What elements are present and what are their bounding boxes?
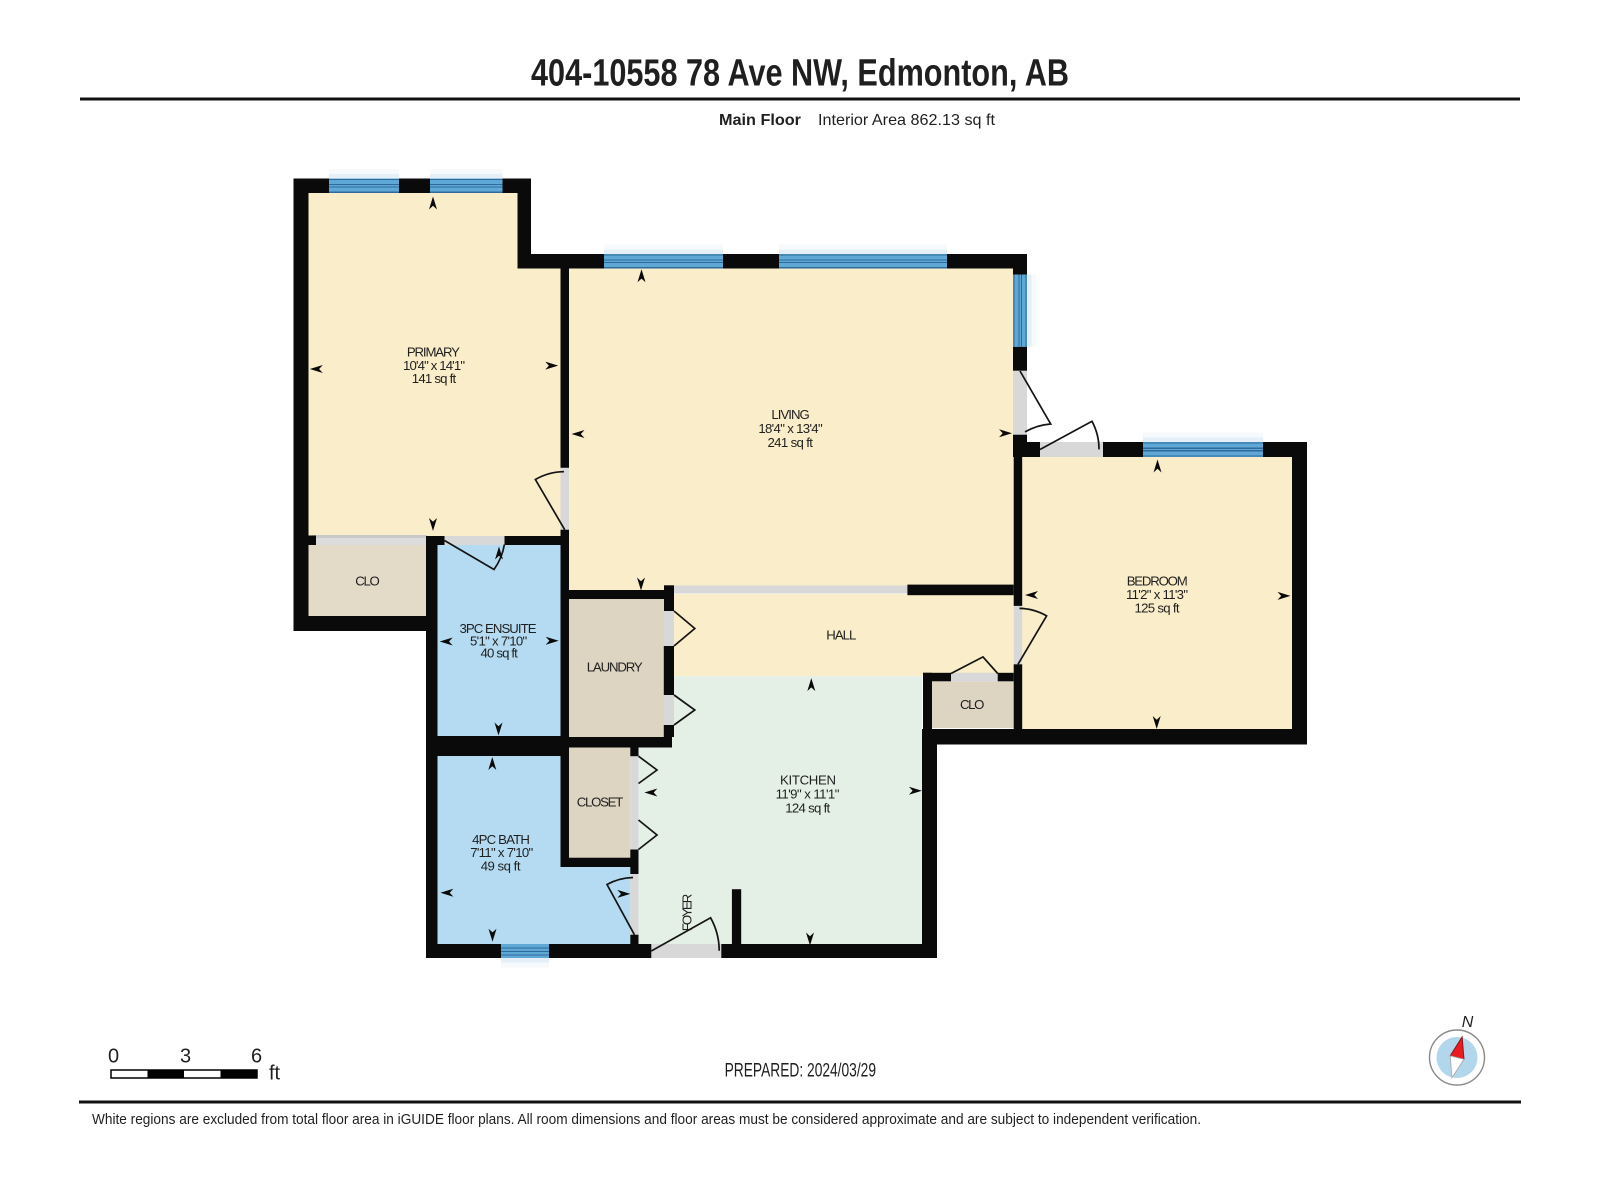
svg-text:18'4" x 13'4": 18'4" x 13'4" [758,421,823,436]
svg-text:241 sq ft: 241 sq ft [767,435,813,450]
svg-text:KITCHEN: KITCHEN [780,773,836,788]
svg-text:141 sq ft: 141 sq ft [412,371,457,386]
svg-text:PREPARED: 2024/03/29: PREPARED: 2024/03/29 [725,1059,876,1081]
svg-text:White regions are excluded fro: White regions are excluded from total fl… [92,1111,1201,1128]
svg-text:LAUNDRY: LAUNDRY [587,660,643,675]
svg-text:404-10558 78 Ave NW, Edmonton,: 404-10558 78 Ave NW, Edmonton, AB [531,53,1069,95]
svg-text:49 sq ft: 49 sq ft [481,859,521,874]
svg-text:6: 6 [251,1046,262,1068]
svg-text:Main Floor: Main Floor [719,112,801,129]
svg-text:125 sq ft: 125 sq ft [1135,601,1180,616]
svg-text:124 sq ft: 124 sq ft [785,801,830,816]
svg-text:ft: ft [269,1063,281,1085]
svg-text:CLOSET: CLOSET [577,795,624,810]
svg-text:3: 3 [180,1046,191,1068]
svg-text:FOYER: FOYER [680,894,695,932]
svg-text:HALL: HALL [826,628,856,643]
svg-text:CLO: CLO [960,697,985,712]
svg-text:11'9" x 11'1": 11'9" x 11'1" [776,787,840,802]
svg-text:Interior Area 862.13 sq ft: Interior Area 862.13 sq ft [818,112,996,129]
svg-text:40 sq ft: 40 sq ft [481,646,519,661]
svg-text:N: N [1462,1014,1474,1031]
svg-text:CLO: CLO [355,574,380,589]
svg-text:0: 0 [108,1046,119,1068]
